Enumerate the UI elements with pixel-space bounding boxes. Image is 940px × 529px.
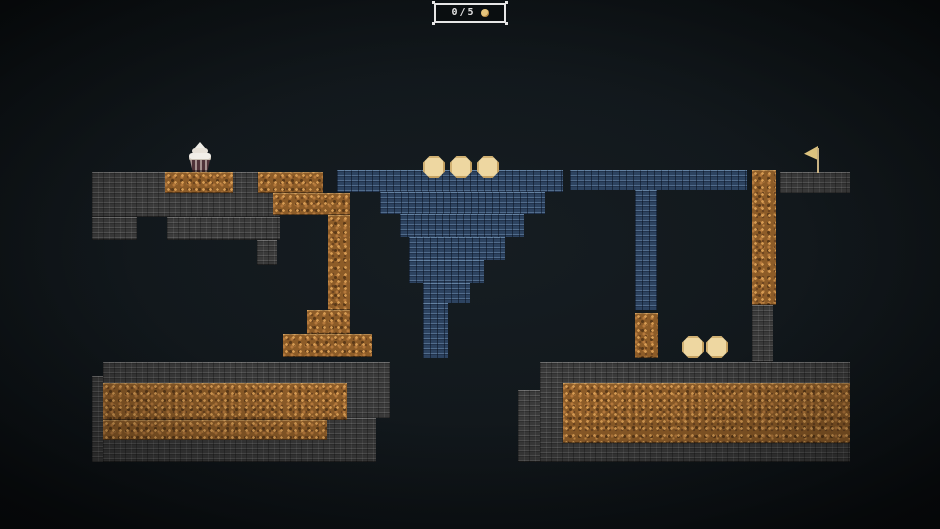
terrain-dirt (103, 383, 347, 420)
coin-icon (481, 9, 489, 17)
terrain-stone (518, 390, 540, 462)
terrain-stone (780, 172, 850, 193)
hud-corner-dot (505, 1, 508, 4)
terrain-dirt (635, 313, 658, 358)
terrain-water (400, 214, 524, 237)
coin-counter-hud: 0/5 (434, 3, 506, 23)
terrain-water (337, 170, 563, 192)
hud-corner-dot (432, 22, 435, 25)
cupcake-player (187, 142, 213, 172)
terrain-water (409, 260, 484, 283)
terrain-water (635, 190, 657, 310)
terrain-dirt (307, 310, 350, 334)
terrain-dirt (752, 170, 776, 305)
terrain-dirt (165, 172, 233, 193)
terrain-stone (257, 240, 277, 265)
coin (682, 336, 704, 358)
terrain-water (570, 170, 747, 190)
terrain-stone (167, 217, 280, 240)
terrain-stone (92, 217, 137, 240)
terrain-dirt (258, 172, 323, 193)
terrain-dirt (328, 215, 350, 310)
terrain-dirt (273, 193, 350, 215)
terrain-water (409, 237, 505, 260)
goal-flag (801, 146, 823, 173)
terrain-stone (752, 305, 773, 362)
terrain-stone (92, 376, 103, 462)
coin (706, 336, 728, 358)
flag-pole (817, 148, 819, 173)
flag-banner (804, 146, 818, 160)
player-cup-base (190, 160, 210, 172)
coin-counter-value: 0/5 (451, 8, 475, 18)
terrain-dirt (563, 383, 850, 443)
terrain-dirt (103, 420, 327, 440)
terrain-water (423, 283, 470, 303)
hud-corner-dot (432, 1, 435, 4)
terrain-water (380, 192, 545, 214)
terrain-dirt (283, 334, 372, 357)
terrain-water (423, 303, 448, 358)
hud-corner-dot (505, 22, 508, 25)
player-frosting-tier (189, 153, 211, 161)
game-viewport[interactable]: 0/5 (0, 0, 940, 529)
